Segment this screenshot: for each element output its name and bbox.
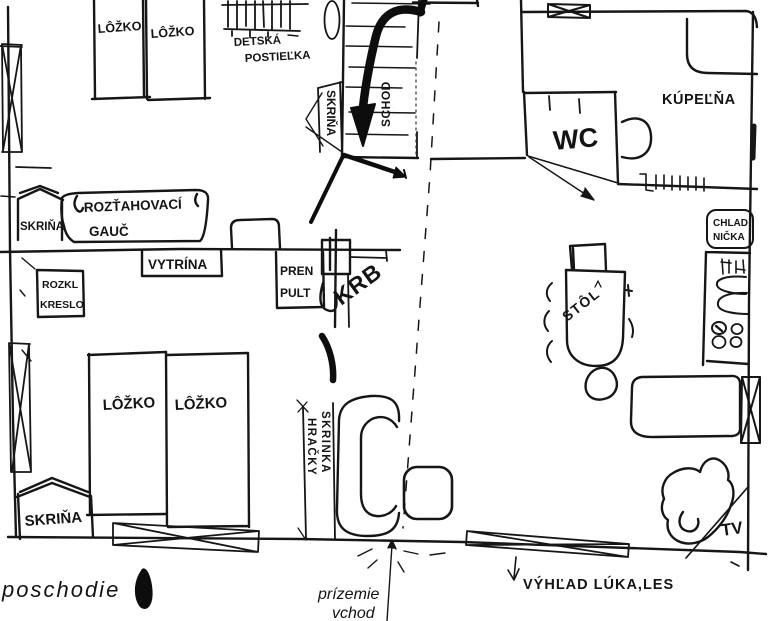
svg-text:KRB: KRB (329, 258, 387, 310)
svg-text:poschodie: poschodie (1, 577, 120, 602)
svg-text:POSTIEĽKA: POSTIEĽKA (245, 50, 311, 65)
svg-text:HRAČKY: HRAČKY (305, 418, 318, 476)
svg-text:VÝHĽAD LÚKA,LES: VÝHĽAD LÚKA,LES (523, 575, 674, 593)
svg-text:CHLAD: CHLAD (713, 218, 748, 229)
svg-text:VYTRÍNA: VYTRÍNA (148, 257, 208, 272)
svg-text:KRESLO: KRESLO (40, 299, 84, 311)
svg-text:KÚPEĽŇA: KÚPEĽŇA (662, 90, 736, 108)
svg-text:GAUČ: GAUČ (89, 224, 129, 239)
svg-text:STÔL: STÔL (558, 284, 603, 324)
svg-text:SKRIŇA: SKRIŇA (24, 508, 83, 530)
svg-text:NIČKA: NIČKA (713, 230, 745, 243)
svg-text:PULT: PULT (280, 286, 311, 300)
svg-text:WC: WC (552, 122, 599, 156)
svg-text:DETSKÁ: DETSKÁ (233, 34, 281, 49)
svg-text:ROZŤAHOVACÍ: ROZŤAHOVACÍ (84, 197, 184, 215)
svg-text:SKRINKA: SKRINKA (319, 411, 331, 474)
svg-text:LÔŽKO: LÔŽKO (150, 23, 195, 41)
svg-text:prízemie: prízemie (317, 586, 379, 603)
svg-text:ROZKL: ROZKL (42, 279, 79, 291)
svg-text:vchod: vchod (332, 605, 376, 621)
svg-text:LÔŽKO: LÔŽKO (97, 18, 142, 36)
svg-text:TV: TV (720, 518, 745, 540)
svg-text:LÔŽKO: LÔŽKO (174, 393, 228, 414)
svg-text:LÔŽKO: LÔŽKO (102, 393, 156, 414)
svg-text:SKRIŇA: SKRIŇA (20, 220, 64, 233)
svg-text:SCHOD: SCHOD (379, 81, 393, 127)
svg-text:PREN: PREN (280, 264, 313, 278)
svg-text:SKRIŇA: SKRIŇA (324, 90, 339, 136)
